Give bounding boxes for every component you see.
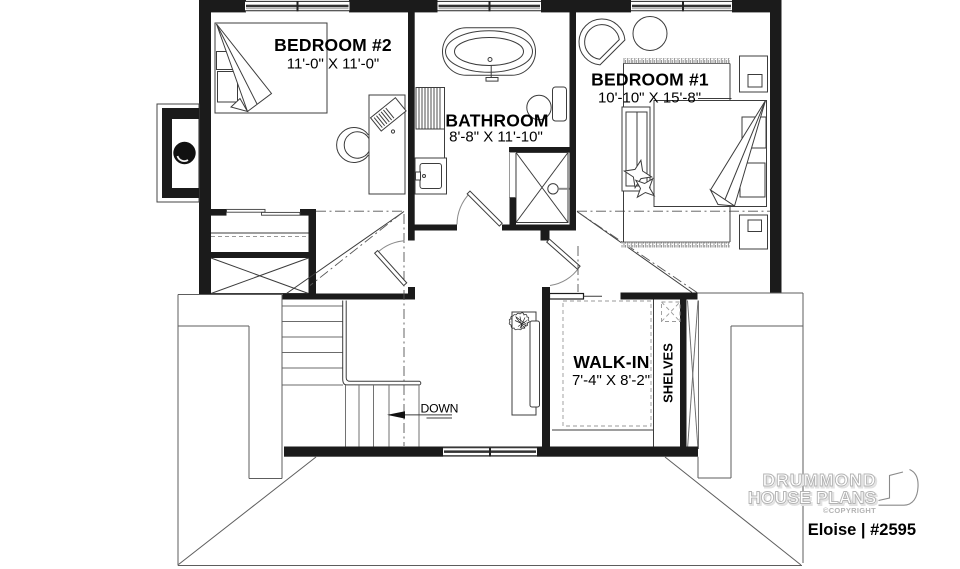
svg-text:Eloise | #2595: Eloise | #2595 bbox=[808, 521, 916, 539]
svg-text:©COPYRIGHT: ©COPYRIGHT bbox=[823, 506, 876, 515]
svg-text:SHELVES: SHELVES bbox=[661, 343, 676, 403]
svg-text:HOUSE PLANS: HOUSE PLANS bbox=[748, 488, 877, 508]
svg-text:8'-8" X 11'-10": 8'-8" X 11'-10" bbox=[449, 129, 543, 146]
svg-text:WALK-IN: WALK-IN bbox=[573, 352, 649, 372]
svg-text:BEDROOM #1: BEDROOM #1 bbox=[591, 70, 709, 90]
svg-text:BATHROOM: BATHROOM bbox=[445, 111, 548, 131]
svg-text:7'-4" X 8'-2": 7'-4" X 8'-2" bbox=[572, 372, 650, 389]
svg-text:11'-0" X 11'-0": 11'-0" X 11'-0" bbox=[287, 56, 380, 73]
svg-text:BEDROOM #2: BEDROOM #2 bbox=[274, 35, 392, 55]
svg-text:DOWN: DOWN bbox=[421, 402, 459, 416]
svg-text:10'-10" X 15'-8": 10'-10" X 15'-8" bbox=[598, 90, 701, 107]
